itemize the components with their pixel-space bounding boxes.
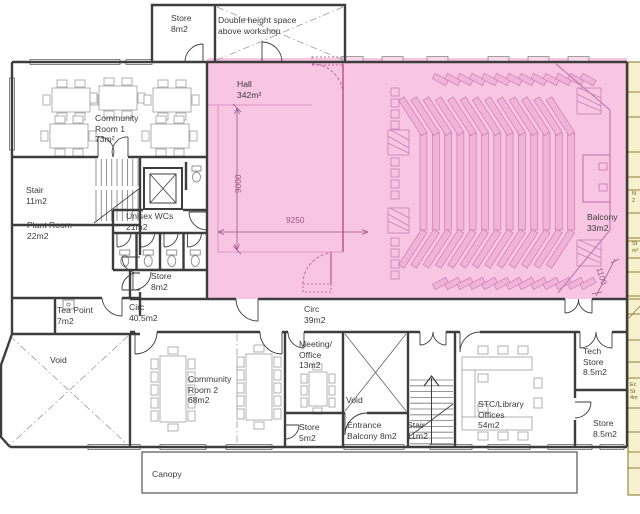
room-label-tech-store: Tech Store 8.5m2 <box>583 346 607 378</box>
room-label-balcony: Balcony 33m2 <box>587 212 618 233</box>
room-label-store-wcs: Store 8m2 <box>151 271 172 292</box>
room-label-circ-405: Circ 40.5m2 <box>129 302 158 323</box>
room-label-community-room-2: Community Room 2 68m2 <box>188 374 231 406</box>
floor-plan: Store 8m2 Double height space above work… <box>0 0 640 514</box>
room-label-store-top: Store 8m2 <box>171 13 192 34</box>
dimension-stage-width: 9250 <box>286 215 304 226</box>
adjacent-building-strip <box>628 62 640 495</box>
room-label-store-85: Store 8.5m2 <box>593 418 617 439</box>
adjacent-label-fragment-3: Ec St 4m <box>630 382 638 402</box>
canopy-outline <box>142 452 577 493</box>
room-label-circ-39: Circ 39m2 <box>304 304 326 325</box>
lift <box>144 168 182 209</box>
dimension-stage-depth: 9000 <box>233 175 244 193</box>
room-label-canopy: Canopy <box>152 469 182 480</box>
room-label-store-5: Store 5m2 <box>299 422 320 443</box>
adjacent-label-fragment-2: St m² <box>632 241 638 254</box>
room-label-double-height: Double height space above workshop <box>218 15 296 36</box>
room-label-entrance-balcony: Entrance Balcony 8m2 <box>347 420 397 441</box>
adjacent-label-fragment-1: N 2 <box>632 191 636 204</box>
room-label-stair-1: Stair 11m2 <box>26 185 47 206</box>
meeting-office-table <box>301 364 335 414</box>
room-label-stair-2: Stair 11m2 <box>407 420 428 441</box>
room-label-plant-room: Plant Room 22m2 <box>27 220 72 241</box>
room-label-stc-library: STC/Library Offices 54m2 <box>478 399 524 431</box>
room-label-hall: Hall 342m² <box>237 79 261 100</box>
room-label-void-left: Void <box>50 355 67 366</box>
room-label-tea-point: Tea Point 7m2 <box>57 305 93 326</box>
room-label-meeting-office: Meeting/ Office 13m2 <box>299 339 332 371</box>
floor-plan-canvas <box>0 0 640 514</box>
room-label-void-center: Void <box>346 395 363 406</box>
room-label-community-room-1: Community Room 1 73m² <box>95 113 138 145</box>
room-label-unisex-wcs: Unisex WCs 21m2 <box>126 211 173 232</box>
